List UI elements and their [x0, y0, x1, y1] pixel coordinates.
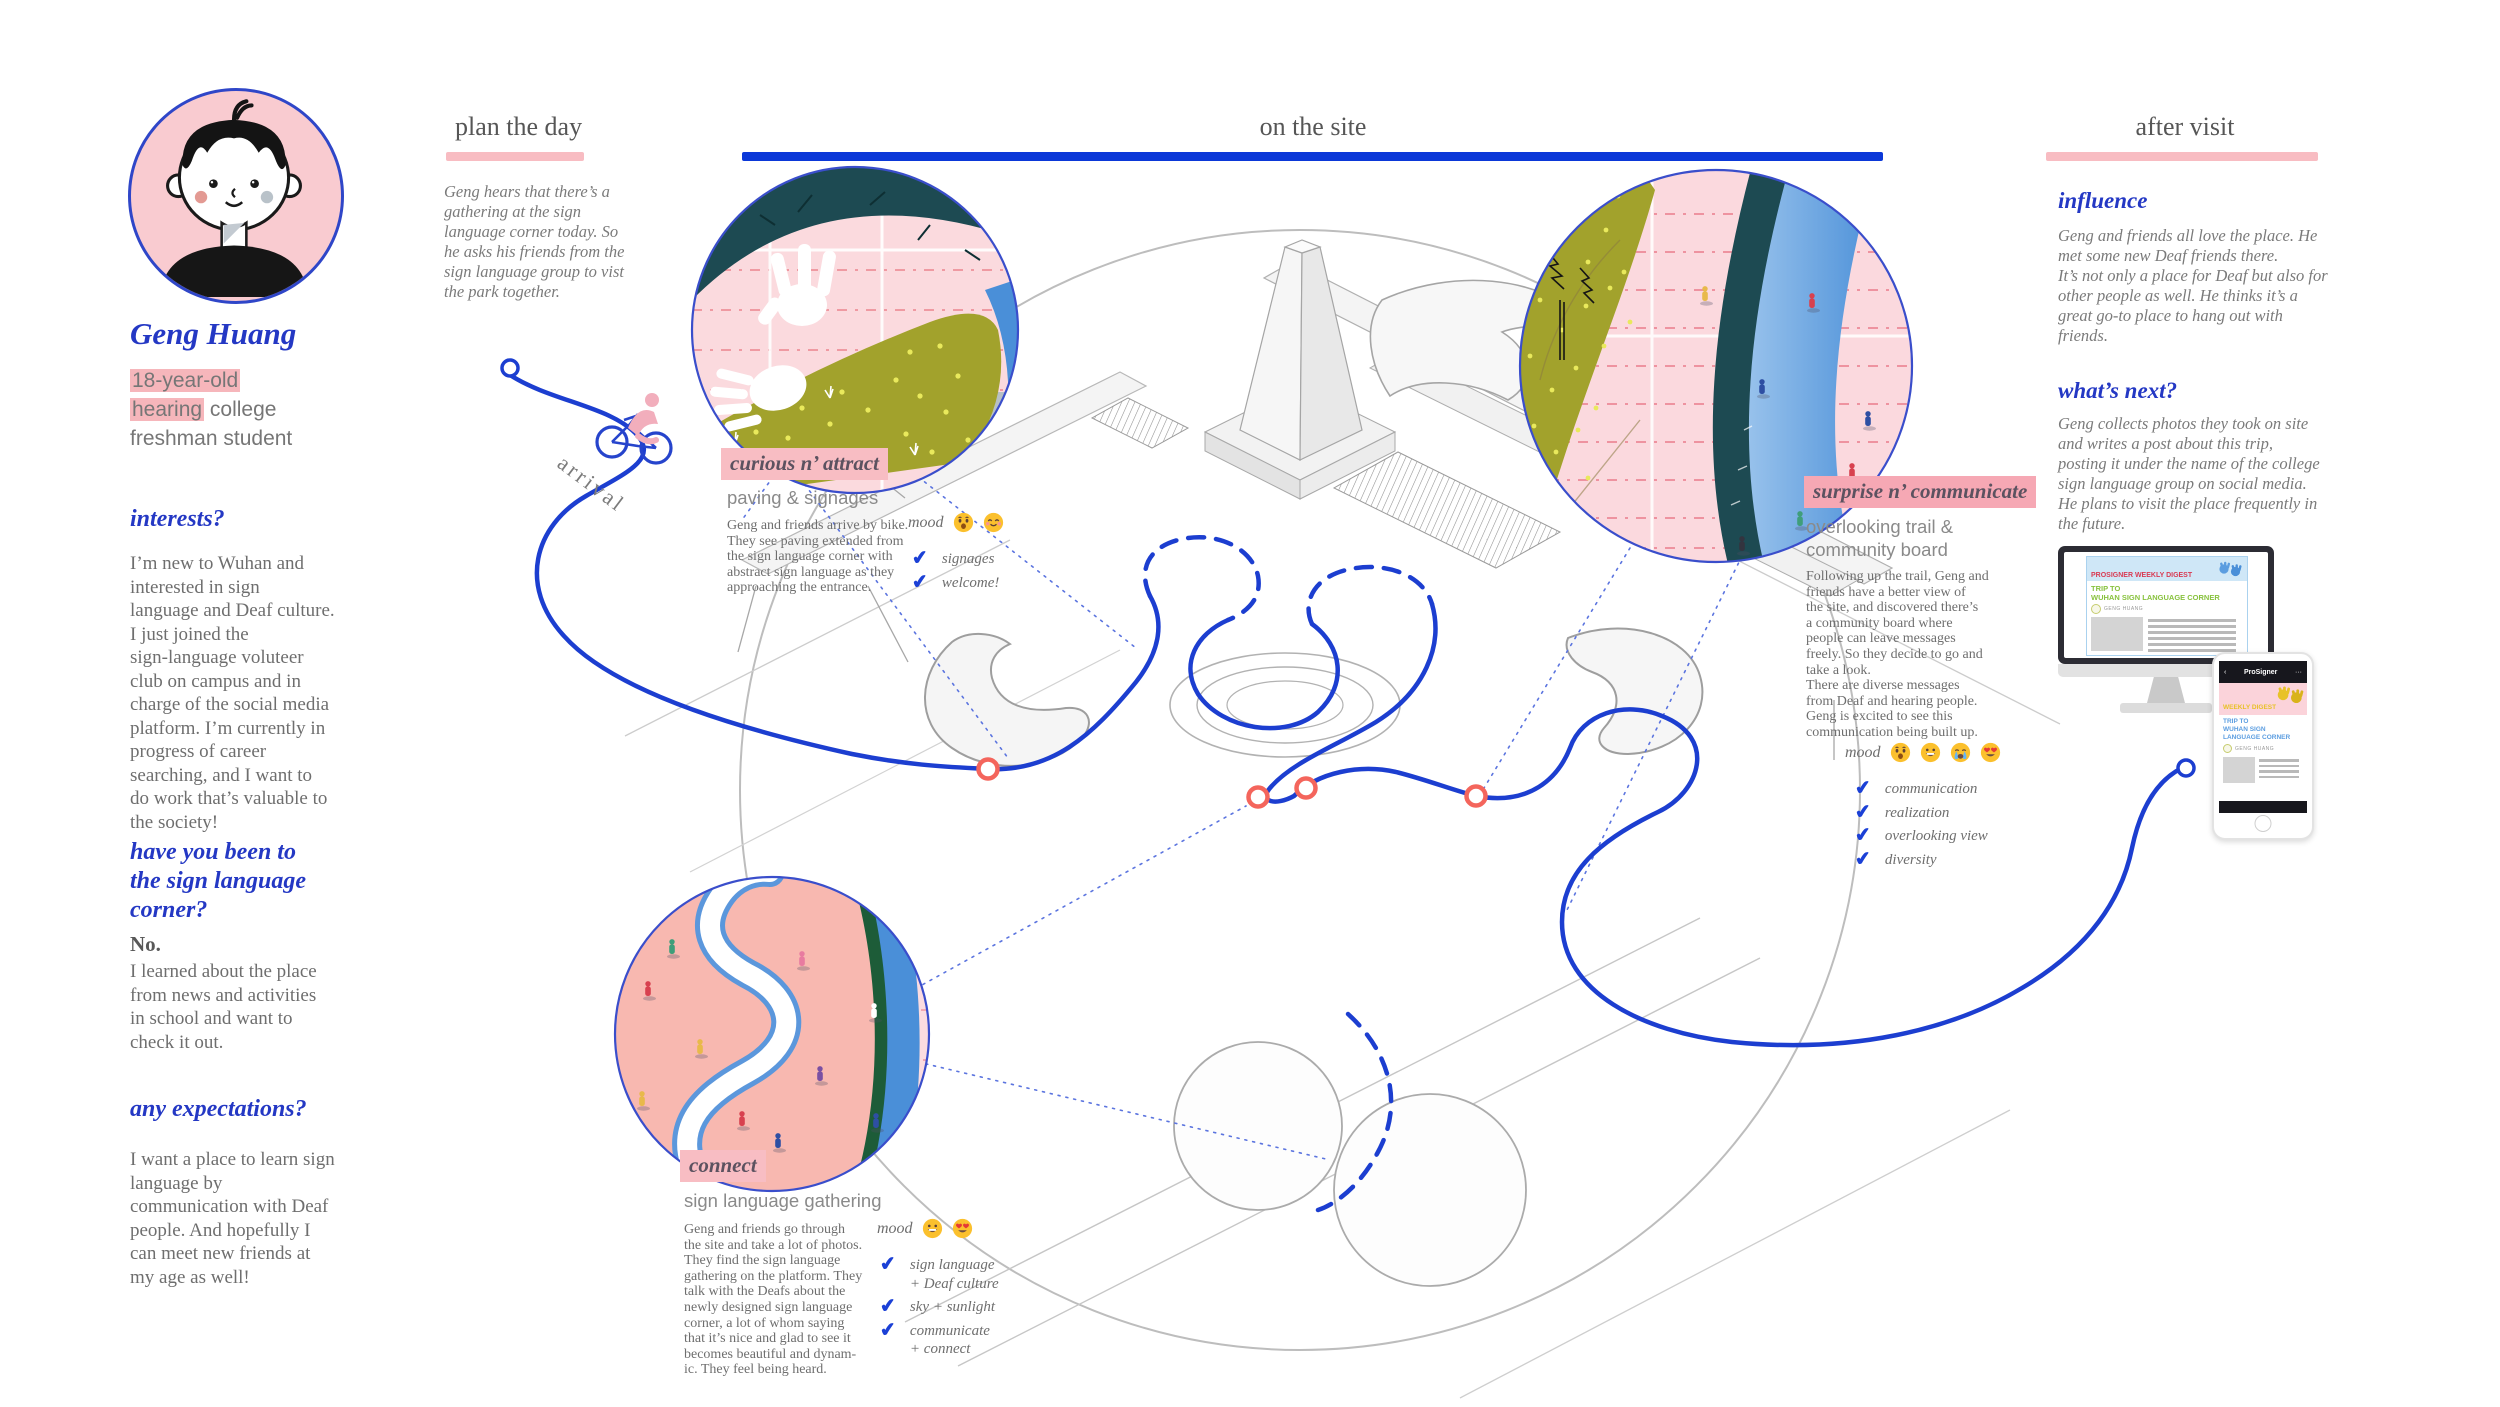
check-icon: ✔ [1854, 803, 1872, 822]
tree-scribbles [1548, 252, 1594, 360]
whats-next-body: Geng collects photos they took on site a… [2058, 414, 2320, 534]
more-icon: ··· [2295, 669, 2302, 676]
check-item: ✔welcome! [912, 574, 999, 593]
check-icon: ✔ [1854, 850, 1872, 869]
interests-body: I’m new to Wuhan and interested in sign … [130, 552, 335, 834]
monument-obelisk [1092, 240, 1560, 568]
whats-next-heading: what’s next? [2058, 378, 2177, 404]
sign-hands-icon [2217, 561, 2243, 579]
check-item: ✔communication [1855, 780, 1988, 799]
stop3-checks: ✔communication ✔realization ✔overlooking… [1855, 780, 1988, 869]
avatar [128, 88, 344, 304]
check-icon: ✔ [911, 573, 929, 592]
webpage-header: PROSIGNER WEEKLY DIGEST [2087, 557, 2247, 581]
interests-heading: interests? [130, 505, 225, 534]
check-icon: ✔ [1854, 826, 1872, 845]
sign-language-hands-art [710, 244, 837, 432]
plan-underline [446, 152, 584, 161]
phone-banner-text: WEEKLY DIGEST [2223, 704, 2276, 711]
home-button [2255, 815, 2272, 832]
digest-masthead: PROSIGNER WEEKLY DIGEST [2091, 572, 2192, 579]
check-icon: ✔ [1854, 779, 1872, 798]
stop-curious-attract: curious n’ attract paving & signages Gen… [721, 448, 908, 596]
arrival-label: arrival [552, 450, 630, 518]
persona-name: Geng Huang [130, 316, 296, 352]
stop1-checks: ✔signages ✔welcome! [912, 550, 999, 592]
stop1-subtitle: paving & signages [727, 486, 908, 509]
stop2-body: Geng and friends go through the site and… [684, 1222, 882, 1378]
phone-banner: WEEKLY DIGEST [2219, 683, 2307, 715]
hatched-ramp [1334, 452, 1560, 568]
emoji-loudly-crying-icon [1950, 742, 1971, 763]
article-media [2087, 616, 2247, 653]
expectations-heading: any expectations? [130, 1095, 307, 1124]
stop1-body: Geng and friends arrive by bike. They se… [727, 518, 908, 596]
emoji-astonished-icon [1890, 742, 1911, 763]
monitor-frame: PROSIGNER WEEKLY DIGEST TRIP TO WUHAN SI… [2058, 546, 2274, 664]
curved-ramps [925, 280, 1702, 1286]
emoji-heart-eyes-icon [952, 1218, 973, 1239]
digest-article-title: TRIP TO WUHAN SIGN LANGUAGE CORNER [2087, 581, 2247, 603]
inset-gathering-platform [613, 872, 932, 1193]
influence-body: Geng and friends all love the place. He … [2058, 226, 2328, 346]
mood-label: mood [908, 514, 944, 532]
digest-webpage: PROSIGNER WEEKLY DIGEST TRIP TO WUHAN SI… [2086, 556, 2248, 656]
mood-label: mood [877, 1220, 913, 1238]
descriptor-student: freshman student [130, 427, 292, 450]
digest-byline: GENG HUANG [2087, 603, 2247, 616]
stop2-subtitle: sign language gathering [684, 1189, 882, 1212]
byline-avatar [2091, 604, 2101, 614]
expectations-body: I want a place to learn sign language by… [130, 1148, 335, 1289]
stop3-body: Following up the trail, Geng and friends… [1806, 569, 2036, 741]
article-photo-placeholder [2091, 617, 2143, 651]
phone-article-title: TRIP TO WUHAN SIGN LANGUAGE CORNER [2219, 715, 2307, 743]
emoji-grinning-icon [1920, 742, 1941, 763]
visited-body: I learned about the place from news and … [130, 960, 317, 1054]
phone-nav-bar: ‹ ProSigner ··· [2219, 661, 2307, 683]
phone-byline: GENG HUANG [2219, 743, 2307, 755]
stop3-mood: mood [1845, 742, 2001, 763]
check-icon: ✔ [879, 1297, 897, 1316]
after-underline [2046, 152, 2318, 161]
journey-end-node [2178, 760, 2194, 776]
check-item: ✔diversity [1855, 851, 1988, 870]
check-item: ✔realization [1855, 804, 1988, 823]
journey-start-node [502, 360, 518, 376]
plan-body: Geng hears that there’s a gathering at t… [444, 182, 624, 302]
stop-connect: connect sign language gathering Geng and… [680, 1150, 882, 1378]
check-item: ✔signages [912, 550, 999, 569]
check-item: ✔overlooking view [1855, 827, 1988, 846]
phone-illustration: ‹ ProSigner ··· WEEKLY DIGEST TRIP TO WU… [2212, 652, 2314, 840]
phone-screen: ‹ ProSigner ··· WEEKLY DIGEST TRIP TO WU… [2219, 661, 2307, 813]
phone-bottom-bar [2219, 801, 2307, 813]
waypoint-nodes [979, 760, 1486, 807]
stop3-subtitle: overlooking trail & community board [1806, 515, 2036, 561]
check-icon: ✔ [879, 1255, 897, 1274]
emoji-heart-eyes-icon [1980, 742, 2001, 763]
persona-journey-map: Geng Huang 18-year-old hearing college f… [0, 0, 2500, 1407]
bike-icon [597, 393, 671, 463]
stop2-mood: mood [877, 1218, 973, 1239]
emoji-astonished-icon [953, 512, 974, 533]
onsite-underline [742, 152, 1883, 161]
stop3-tag: surprise n’ communicate [1804, 476, 2036, 508]
avatar-face-art [131, 91, 337, 297]
emoji-smiling-blush-icon [983, 512, 1004, 533]
check-item: ✔sign language + Deaf culture [880, 1256, 999, 1293]
site-boundary-circle [740, 230, 1860, 1350]
article-text-lines [2148, 617, 2236, 652]
article-photo-placeholder [2223, 757, 2255, 783]
check-item: ✔communicate + connect [880, 1322, 999, 1359]
phone-article-media [2219, 755, 2307, 785]
article-text-lines [2259, 757, 2299, 783]
phase-title-onsite: on the site [1238, 112, 1388, 142]
stop2-checks: ✔sign language + Deaf culture ✔sky + sun… [880, 1256, 999, 1359]
hatched-ramp-small [1092, 398, 1188, 448]
stop1-mood: mood [908, 512, 1004, 533]
sign-hands-icon [2275, 685, 2305, 707]
descriptor-hearing: hearing [130, 398, 204, 421]
back-icon: ‹ [2224, 669, 2226, 676]
check-icon: ✔ [911, 549, 929, 568]
stop2-tag: connect [680, 1150, 766, 1182]
byline-avatar [2223, 744, 2232, 753]
descriptor-college: college [204, 398, 276, 421]
influence-heading: influence [2058, 188, 2147, 214]
monitor-base [2120, 703, 2212, 713]
emoji-grinning-icon [922, 1218, 943, 1239]
stop1-tag: curious n’ attract [721, 448, 888, 480]
phase-title-plan: plan the day [455, 112, 582, 142]
check-icon: ✔ [879, 1321, 897, 1340]
mood-label: mood [1845, 744, 1881, 762]
phase-title-after: after visit [2110, 112, 2260, 142]
monitor-stand [2147, 677, 2185, 703]
visited-heading: have you been to the sign language corne… [130, 838, 306, 925]
descriptor-age: 18-year-old [130, 369, 240, 392]
check-item: ✔sky + sunlight [880, 1298, 999, 1317]
app-name: ProSigner [2244, 669, 2277, 676]
monitor-screen: PROSIGNER WEEKLY DIGEST TRIP TO WUHAN SI… [2064, 552, 2268, 658]
persona-descriptor: 18-year-old hearing college freshman stu… [130, 366, 292, 453]
stop-surprise-communicate: surprise n’ communicate overlooking trai… [1804, 476, 2036, 741]
visited-answer: No. [130, 932, 161, 957]
